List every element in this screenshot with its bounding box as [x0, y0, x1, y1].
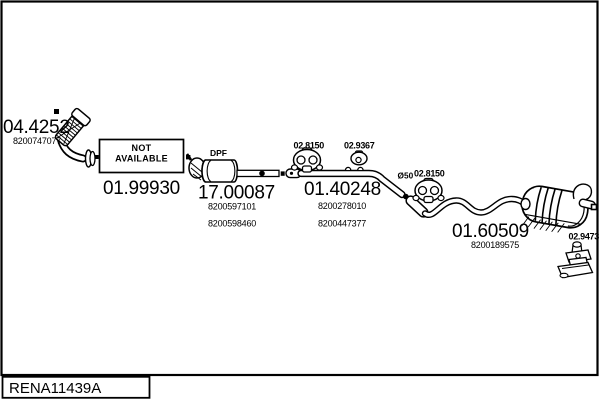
connection-marker	[95, 155, 99, 159]
connection-marker	[592, 205, 597, 210]
bracket-code: 02.9473	[569, 232, 600, 242]
drawing-frame	[2, 2, 598, 376]
part-ref: 8200747077	[13, 136, 61, 146]
not-available-line1: NOT	[132, 143, 152, 153]
connection-marker	[54, 109, 59, 114]
part-code-front-pipe: 04.4252	[3, 117, 70, 138]
part-ref: 8200278010	[318, 201, 366, 211]
exhaust-parts-diagram: 04.4252 8200747077 NOT AVAILABLE 01.9993…	[0, 0, 600, 400]
part-code-rear-muffler: 01.60509	[452, 221, 529, 242]
part-code-dpf: 17.00087	[198, 183, 275, 204]
part-code-catalyst: 01.99930	[103, 178, 180, 199]
connection-marker	[281, 171, 285, 175]
not-available-line2: AVAILABLE	[115, 154, 168, 164]
drawing-code-box: RENA11439A	[3, 377, 150, 398]
part-ref: 8200598460	[208, 219, 256, 229]
pipe-diameter-label: Ø50	[398, 171, 414, 181]
part-ref: 8200447377	[318, 219, 366, 229]
dpf-label: DPF	[210, 148, 227, 158]
part-ref: 8200189575	[471, 240, 519, 250]
clamp-dot	[259, 171, 265, 177]
inlet-stub	[521, 199, 530, 210]
catalyst-placeholder-box: NOT AVAILABLE	[100, 140, 191, 173]
drawing-code: RENA11439A	[9, 380, 101, 397]
part-code-centre-pipe: 01.40248	[304, 179, 381, 200]
hanger-code-1: 02.8150	[294, 141, 325, 151]
hanger-code-2: 02.8150	[414, 169, 445, 179]
tailpipe-curl	[573, 184, 591, 199]
diagram-canvas: 04.4252 8200747077 NOT AVAILABLE 01.9993…	[0, 0, 600, 400]
part-ref: 8200597101	[208, 202, 256, 212]
mount-code: 02.9367	[344, 141, 375, 151]
